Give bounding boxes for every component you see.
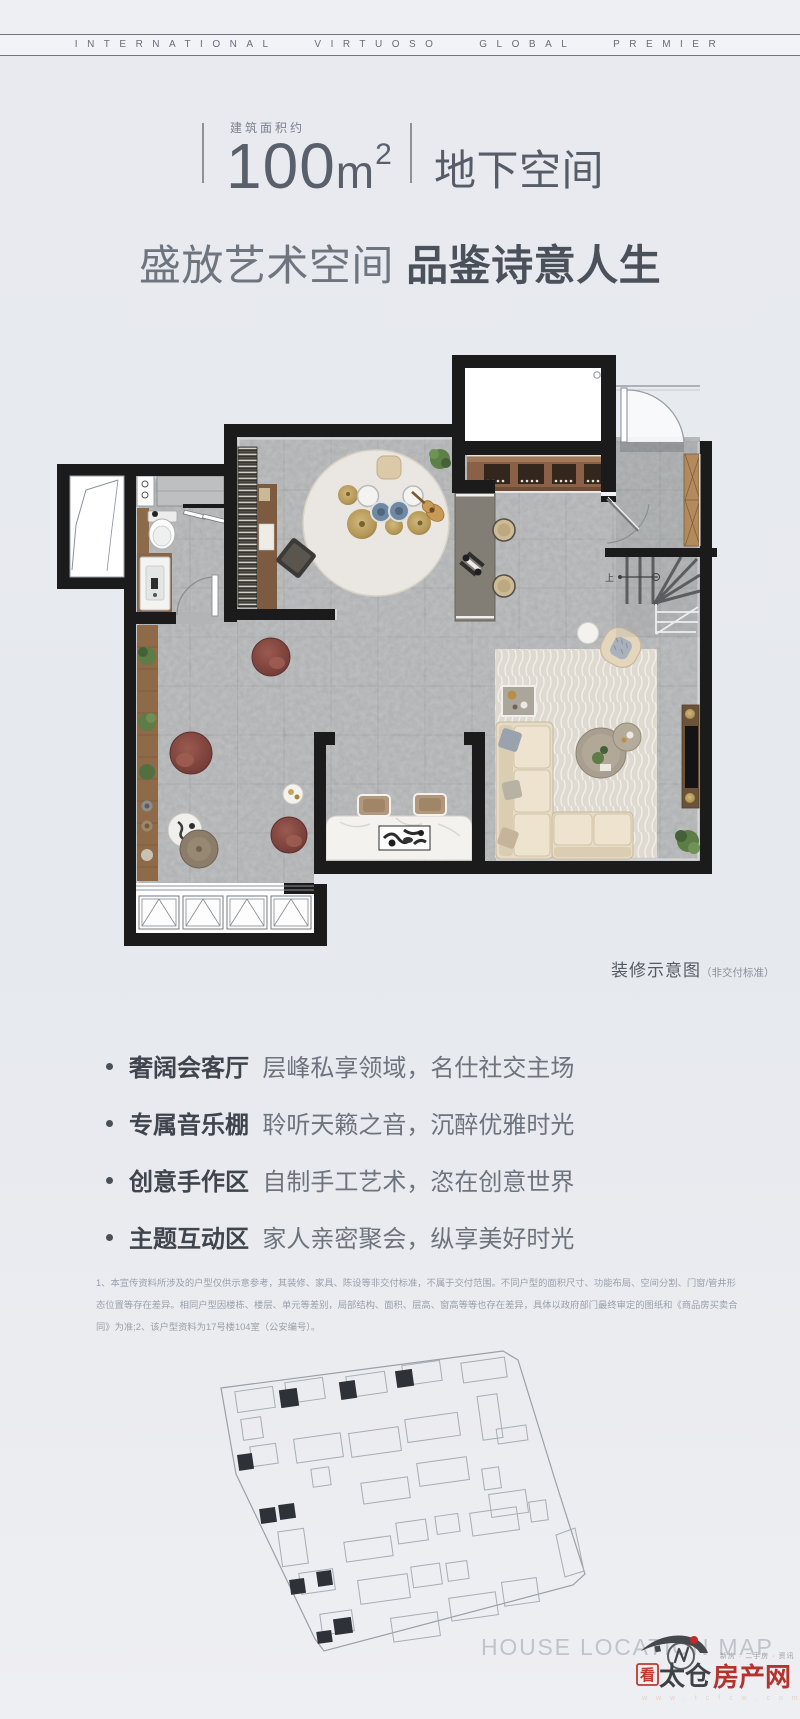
svg-text:新房 · 二手房 · 资讯: 新房 · 二手房 · 资讯 [720, 1651, 794, 1660]
svg-text:w w w . t c f c w . c o m: w w w . t c f c w . c o m [641, 1695, 800, 1702]
svg-text:上: 上 [605, 573, 614, 583]
svg-text:房产网: 房产网 [713, 1662, 791, 1692]
svg-text:看: 看 [640, 1666, 655, 1684]
svg-text:太仓: 太仓 [659, 1661, 712, 1691]
